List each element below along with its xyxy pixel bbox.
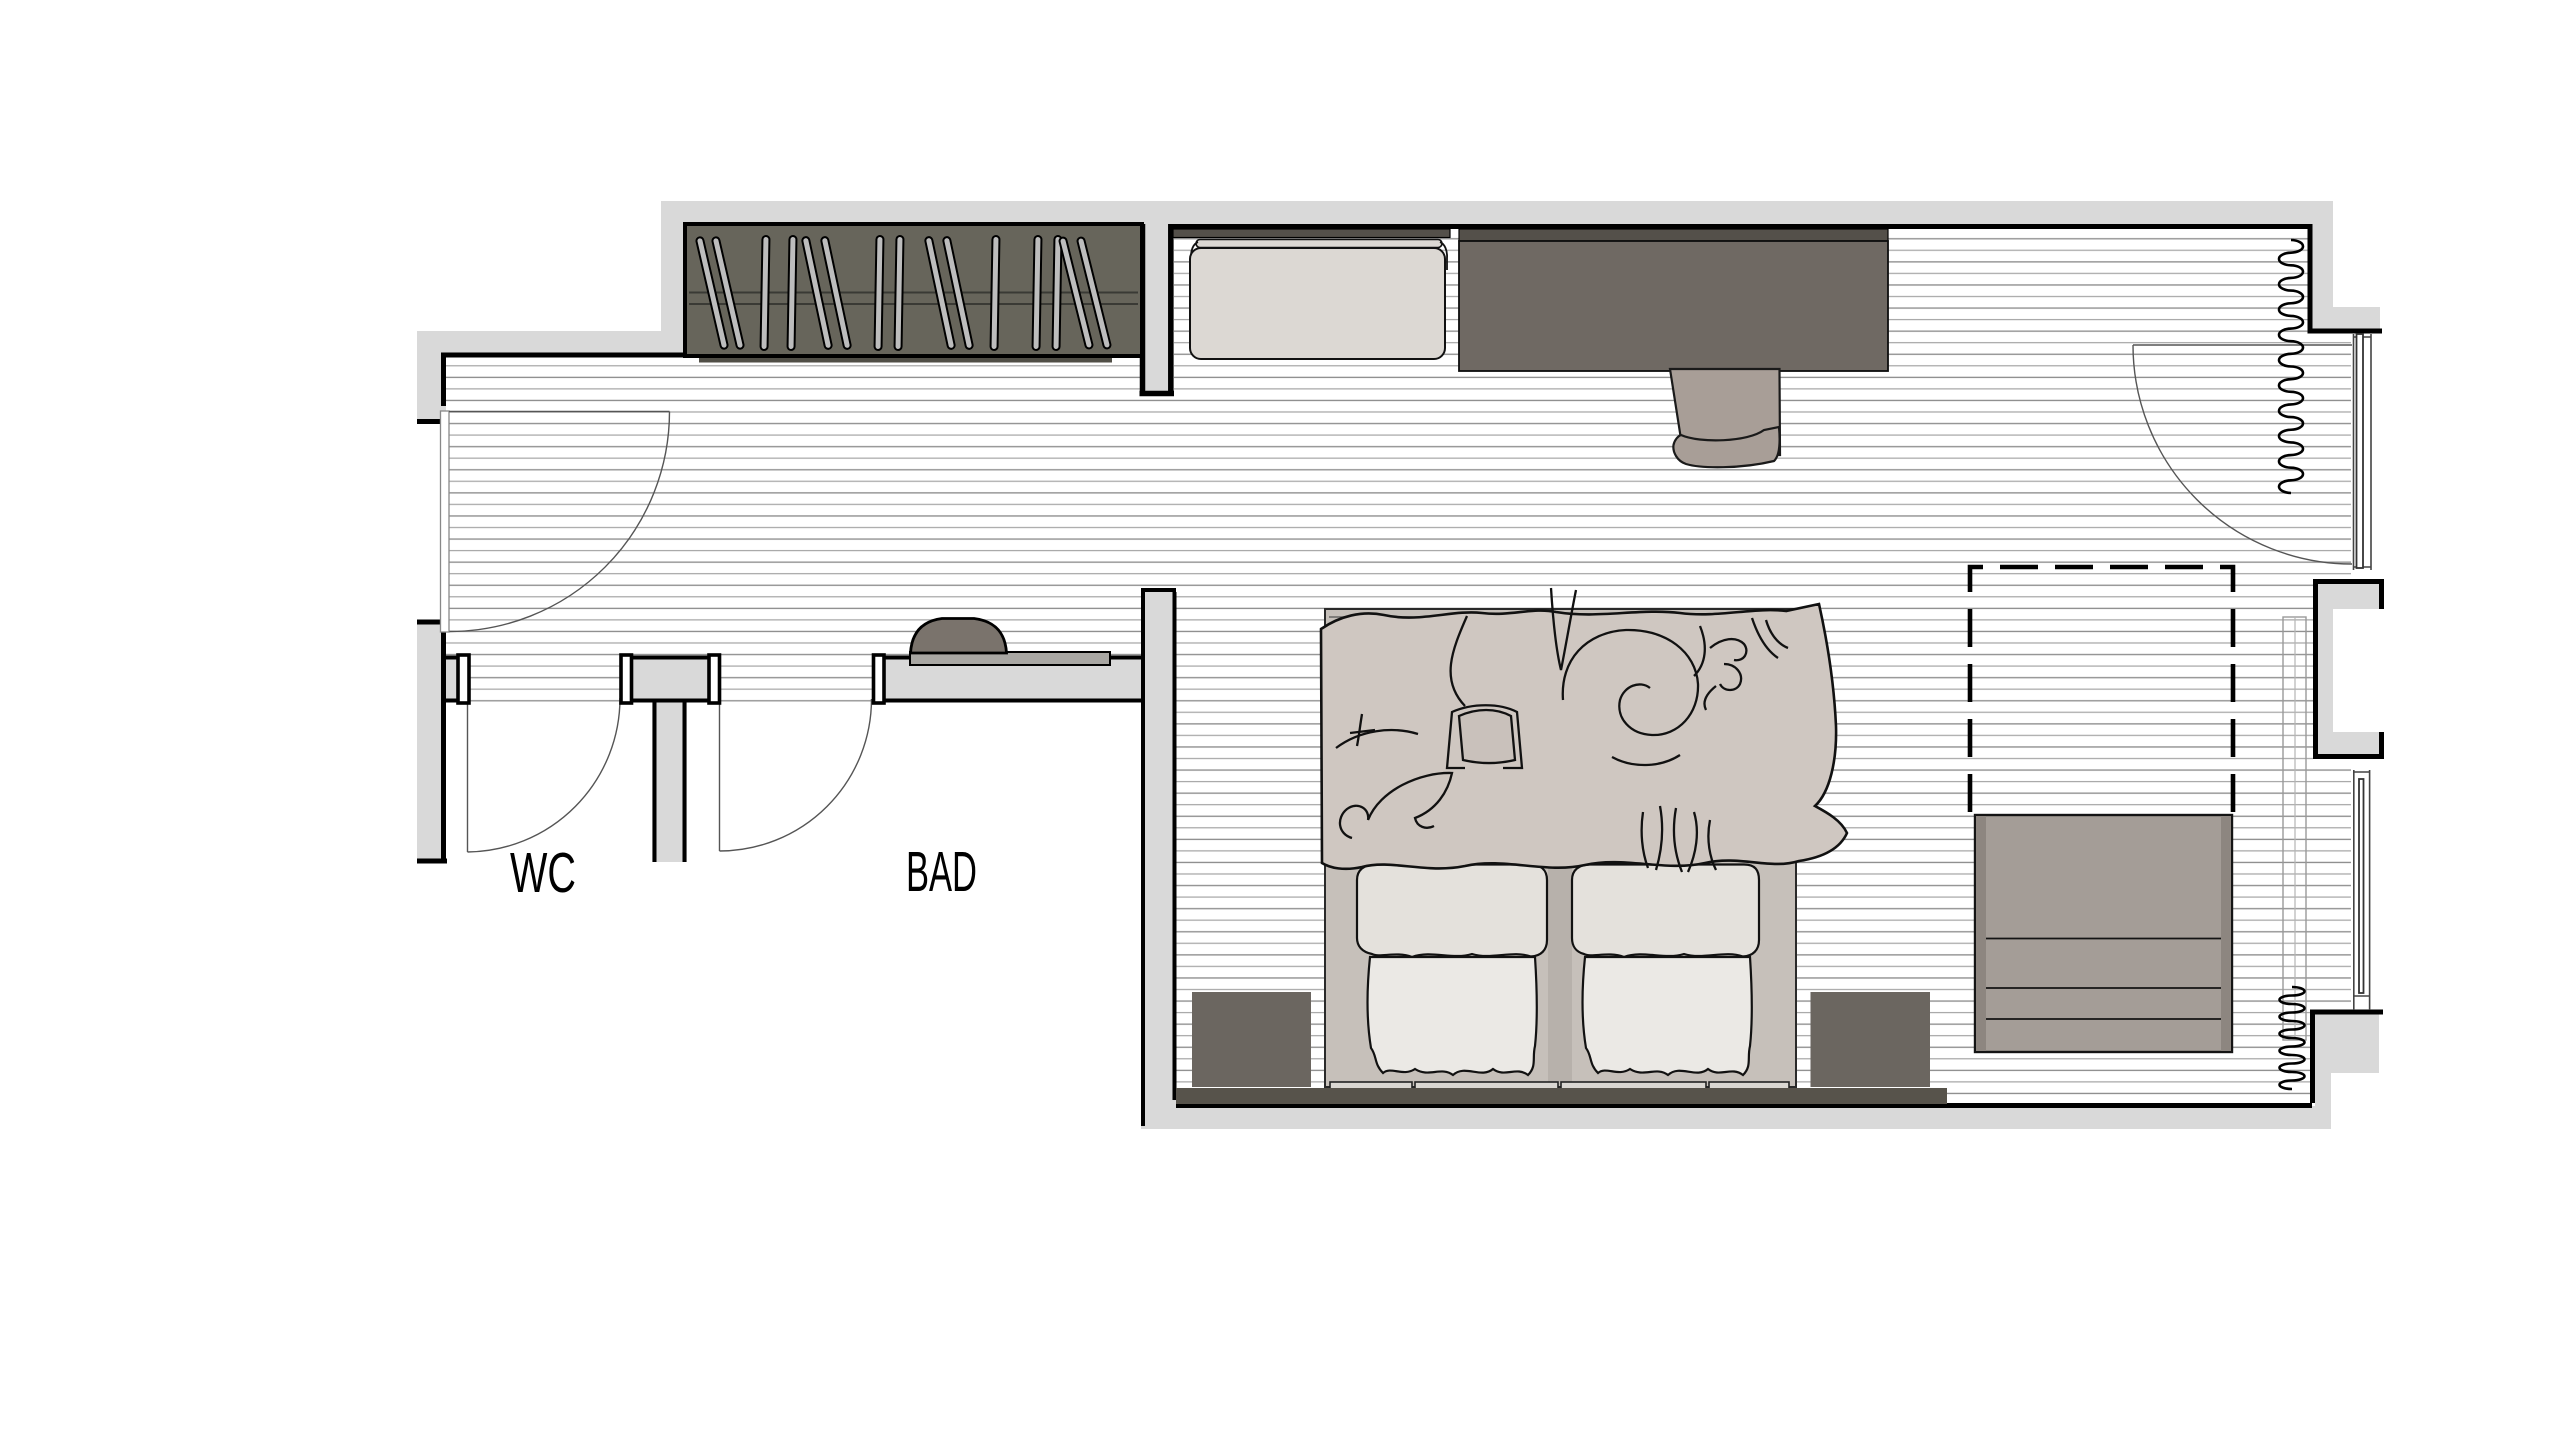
svg-text:BAD: BAD (906, 840, 977, 904)
svg-text:WC: WC (510, 841, 576, 905)
